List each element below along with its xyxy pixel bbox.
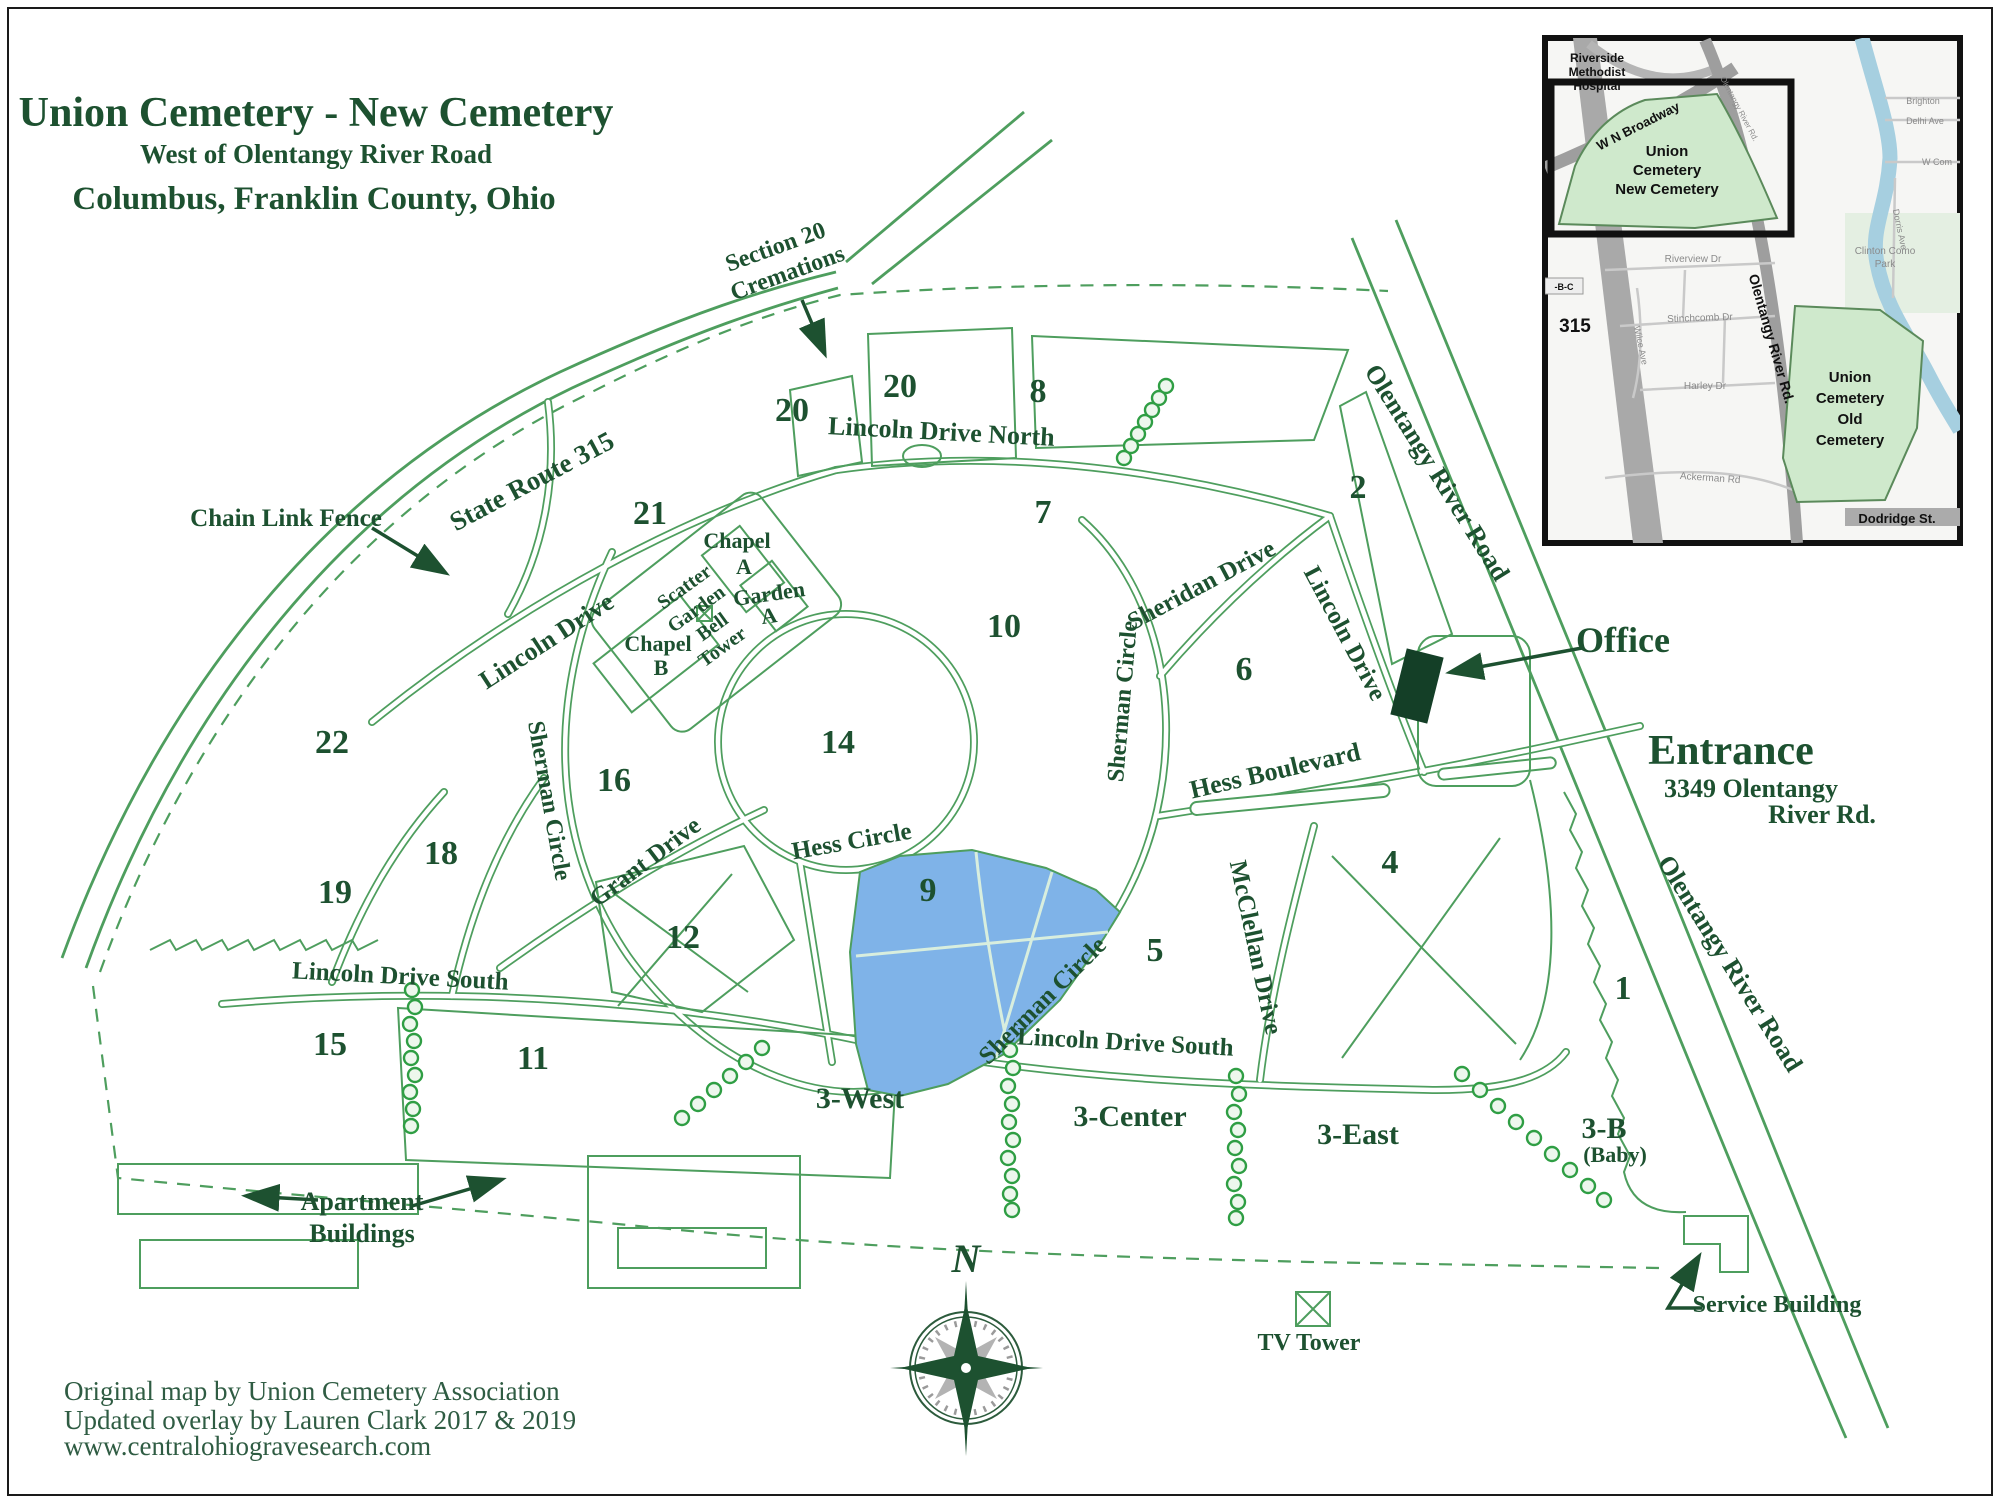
inset-315-label: 315 (1559, 316, 1591, 337)
annotation-arrows (248, 300, 1702, 1308)
section-5-label: 5 (1147, 932, 1164, 969)
inset-hospital-label-1: Riverside (1570, 51, 1624, 65)
inset-brighton-label: Brighton (1906, 96, 1940, 106)
office-label: Office (1576, 620, 1670, 660)
inset-hospital-label-3: Hospital (1573, 79, 1620, 93)
section-21-label: 21 (633, 495, 667, 532)
road-label-olentangy-north: Olentangy River Road (1359, 359, 1516, 586)
tv-tower-icon (1296, 1292, 1330, 1326)
map-title: Union Cemetery - New Cemetery (19, 90, 614, 136)
road-label-mcclellan-drive: McClellan Drive (1224, 858, 1287, 1037)
inset-bc-label: -B-C (1555, 282, 1574, 292)
section-9-label: 9 (920, 872, 937, 909)
chapel-a-label-1: Chapel (703, 528, 770, 553)
inset-stinchcomb-label: Stinchcomb Dr (1667, 312, 1734, 325)
road-label-sheridan-drive: Sheridan Drive (1123, 535, 1280, 635)
road-label-lincoln-drive-north: Lincoln Drive North (827, 411, 1056, 452)
section-10-label: 10 (987, 608, 1021, 645)
section-12-label: 12 (666, 919, 700, 956)
zone-3b-label: 3-B (1582, 1112, 1627, 1145)
office-building (1390, 648, 1443, 723)
section-11-label: 11 (517, 1040, 549, 1077)
inset-map: Riverside Methodist Hospital W N Broadwa… (1545, 38, 1960, 543)
section-2-label: 2 (1350, 469, 1367, 506)
section-22-label: 22 (315, 724, 349, 761)
section-4-label: 4 (1382, 844, 1399, 881)
map-location: Columbus, Franklin County, Ohio (72, 181, 555, 217)
section-18-label: 18 (424, 835, 458, 872)
section-20a-label: 20 (775, 392, 809, 429)
credit-line-1: Original map by Union Cemetery Associati… (64, 1376, 560, 1406)
inset-delhi-label: Delhi Ave (1906, 116, 1944, 126)
tv-tower-label: TV Tower (1258, 1330, 1361, 1356)
inset-old-cemetery-label-3: Old (1838, 411, 1863, 428)
compass-north-label: N (951, 1236, 983, 1281)
section-7-label: 7 (1035, 494, 1052, 531)
zone-3-center-label: 3-Center (1073, 1100, 1186, 1133)
road-label-sherman-circle-north: Sherman Circle (1103, 619, 1143, 783)
road-label-grant-drive: Grant Drive (585, 812, 706, 913)
compass-rose: N (890, 1236, 1043, 1456)
inset-wcom-label: W Com (1922, 157, 1952, 167)
inset-old-cemetery-label-2: Cemetery (1816, 390, 1885, 407)
section-1-label: 1 (1615, 970, 1632, 1007)
chain-link-fence-line (100, 285, 1388, 972)
inset-new-cemetery-label-2: Cemetery (1633, 162, 1702, 179)
apartment-building-3-inner (618, 1228, 766, 1268)
section-6-label: 6 (1236, 651, 1253, 688)
garden-a-label-2: A (759, 602, 778, 629)
road-label-olentangy-south: Olentangy River Road (1652, 850, 1809, 1077)
chapel-b-label-1: Chapel (624, 631, 691, 656)
road-label-lincoln-drive-east: Lincoln Drive (1298, 562, 1391, 705)
zone-3b-baby-label: (Baby) (1583, 1142, 1647, 1167)
inset-clinton-label-2: Park (1875, 259, 1897, 270)
inset-new-cemetery-label-3: New Cemetery (1615, 181, 1719, 198)
inset-old-cemetery-label-1: Union (1829, 369, 1872, 386)
cemetery-map: N Union Cemetery - New Cemetery West of … (0, 0, 2000, 1503)
entrance-label: Entrance (1648, 728, 1814, 774)
road-label-lincoln-drive-south-east: Lincoln Drive South (1016, 1023, 1234, 1061)
road-label-state-route-315: State Route 315 (445, 425, 619, 537)
credit-line-3: www.centralohiogravesearch.com (64, 1431, 431, 1461)
chain-link-fence-label: Chain Link Fence (190, 505, 382, 532)
section-14-label: 14 (821, 724, 855, 761)
road-label-lincoln-drive-south-west: Lincoln Drive South (291, 957, 509, 995)
section-15-label: 15 (313, 1026, 347, 1063)
entrance-address-1: 3349 Olentangy (1664, 774, 1838, 803)
tree-rows (403, 379, 1611, 1225)
fence-arrow (372, 528, 444, 572)
zone-3-east-label: 3-East (1317, 1118, 1399, 1151)
section-8-label: 8 (1030, 373, 1047, 410)
service-building-label: Service Building (1693, 1292, 1862, 1318)
section-16-label: 16 (597, 762, 631, 799)
section-20b-label: 20 (883, 368, 917, 405)
inset-dodridge-label: Dodridge St. (1858, 511, 1935, 526)
chapel-a-label-2: A (736, 554, 752, 579)
cremations-arrow (802, 300, 824, 352)
apartment-arrow-right (412, 1180, 500, 1206)
office-arrow (1452, 648, 1582, 672)
entrance-address-2: River Rd. (1768, 800, 1876, 829)
apartment-label-2: Buildings (309, 1219, 415, 1248)
chapel-b-label-2: B (654, 655, 669, 680)
inset-riverview-label: Riverview Dr (1665, 254, 1722, 265)
map-subtitle: West of Olentangy River Road (140, 139, 492, 169)
apartment-label-1: Apartment (301, 1187, 424, 1216)
section-19-label: 19 (318, 874, 352, 911)
inset-harley-label: Harley Dr (1684, 381, 1727, 392)
inset-new-cemetery-label-1: Union (1646, 143, 1689, 160)
zone-3-west-label: 3-West (816, 1082, 904, 1115)
inset-old-cemetery-label-4: Cemetery (1816, 432, 1885, 449)
inset-hospital-label-2: Methodist (1569, 65, 1626, 79)
